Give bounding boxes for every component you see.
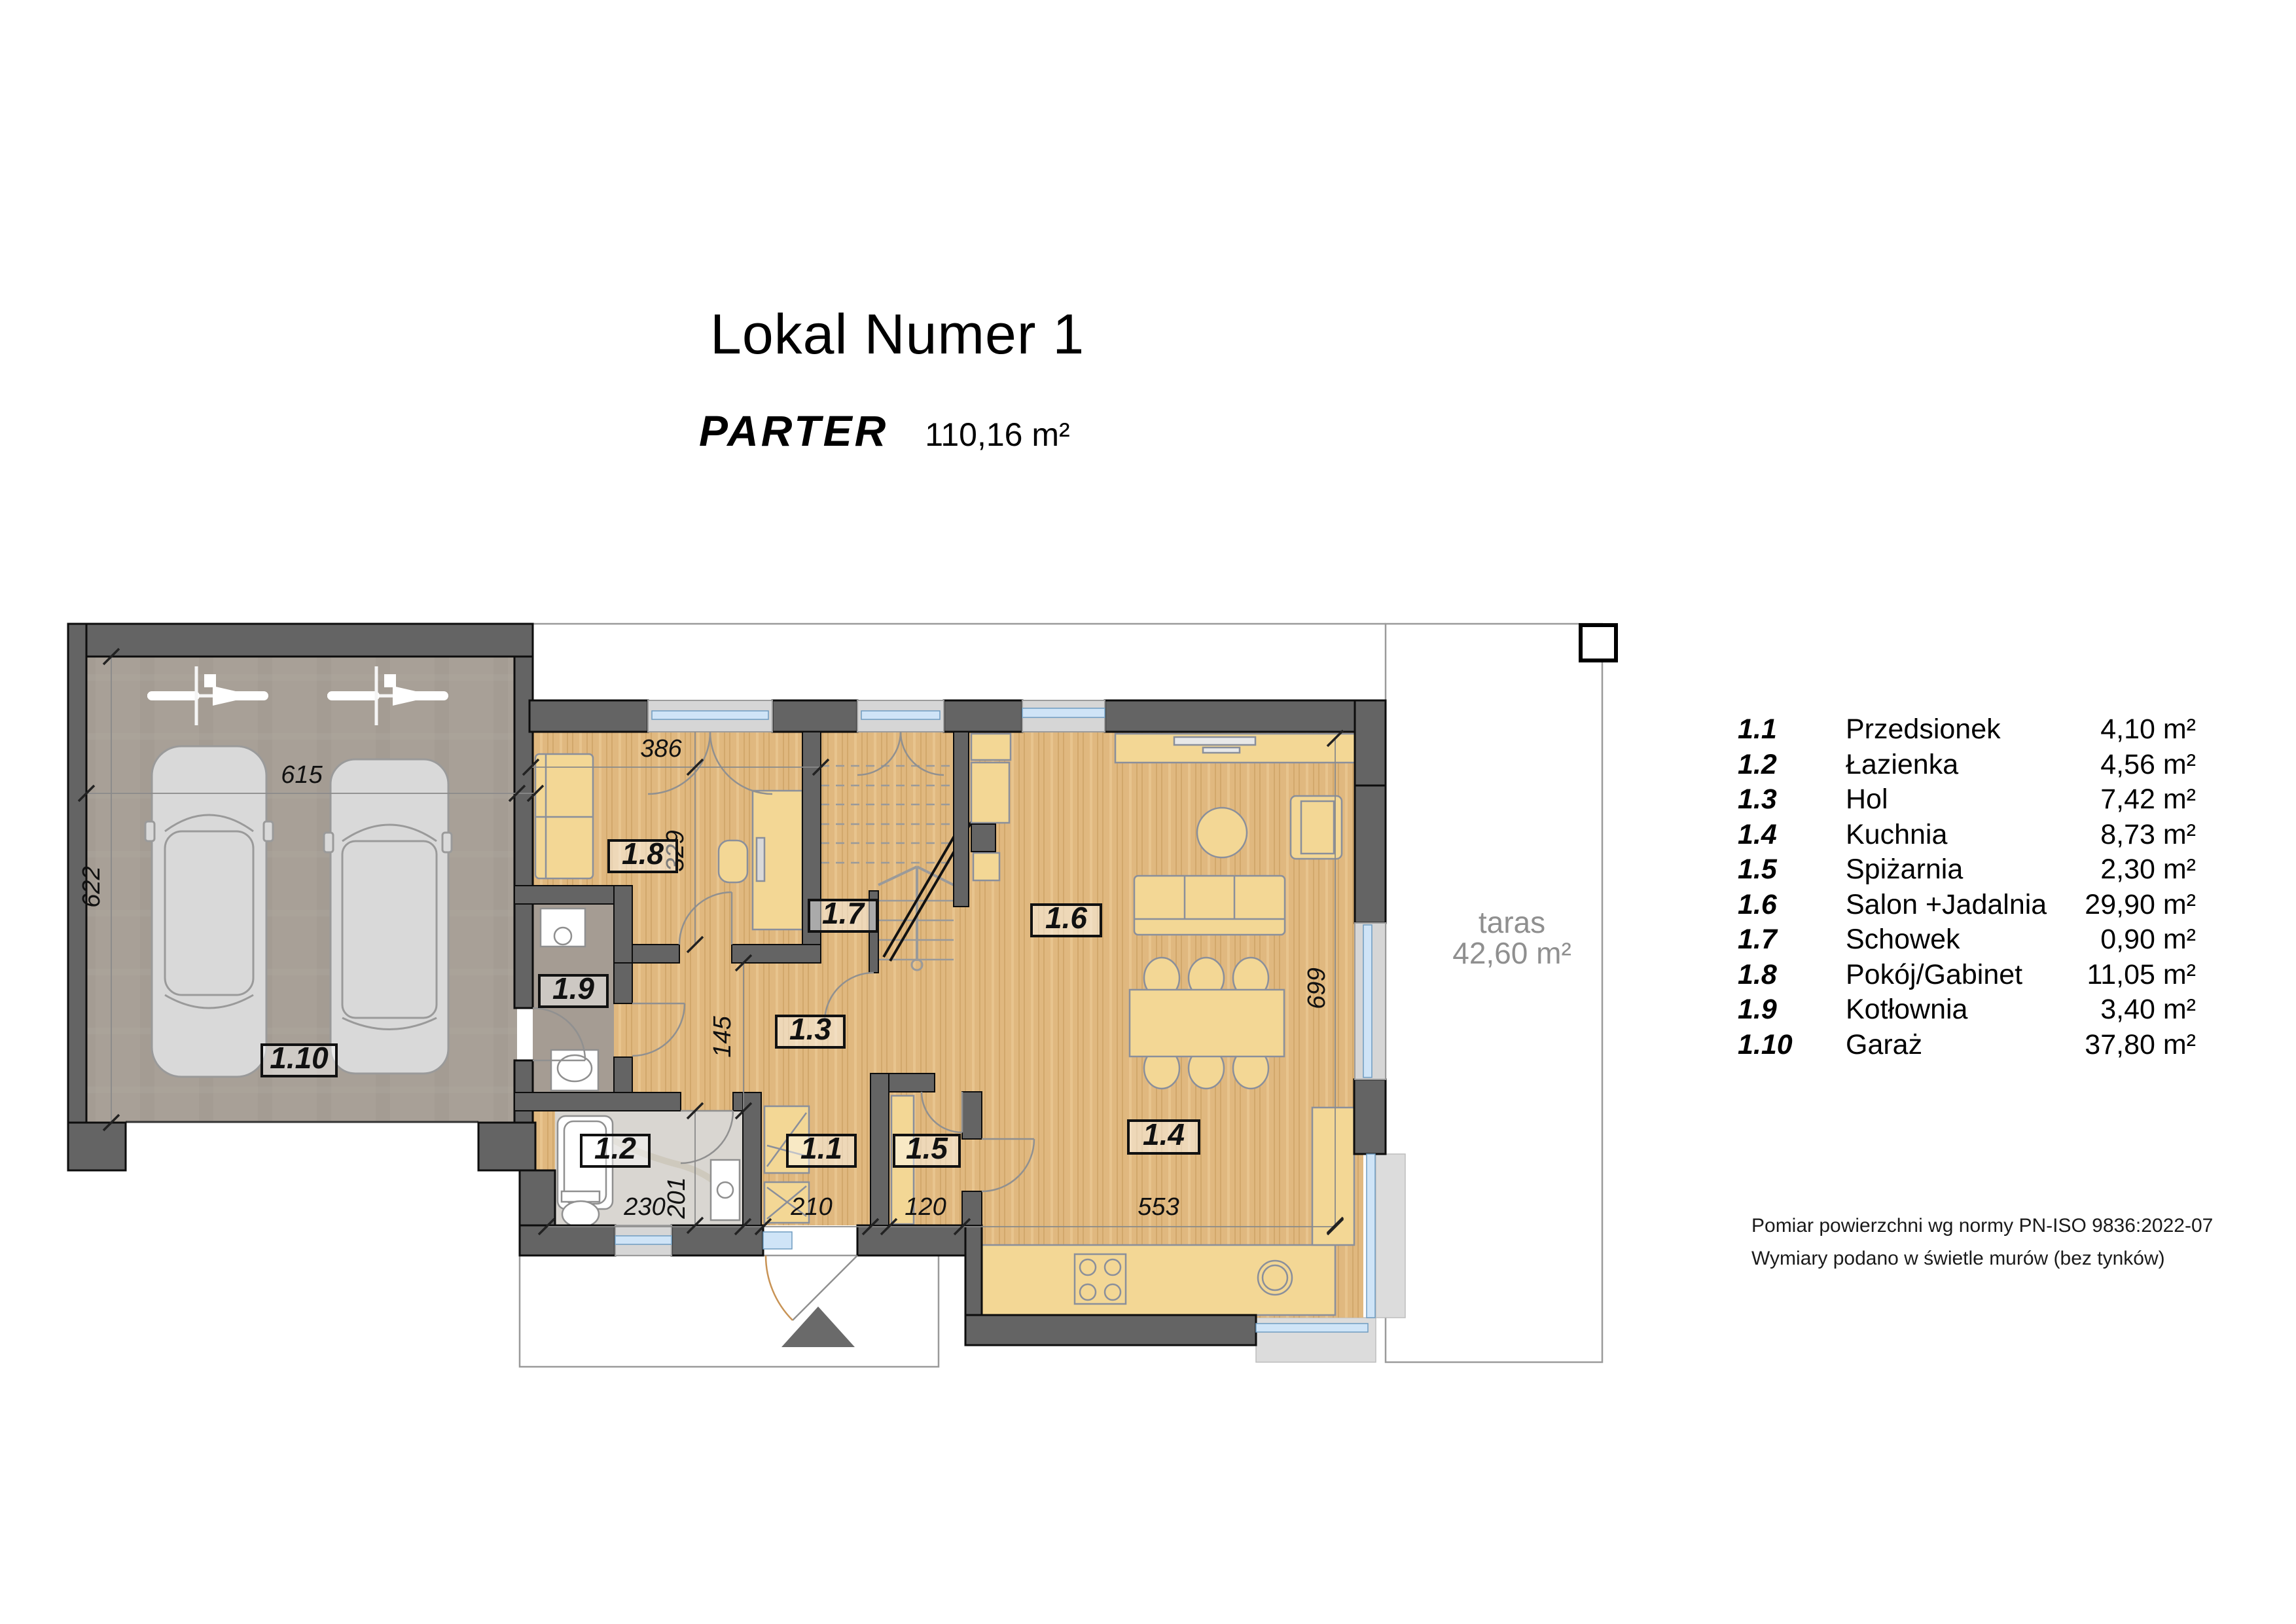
label-hall: 1.3 — [789, 1012, 831, 1046]
corner-window-side — [1367, 1154, 1375, 1318]
label-living: 1.6 — [1045, 901, 1087, 935]
sofa — [1134, 876, 1285, 935]
kitchen-tall-unit — [971, 763, 1009, 823]
dim-hall-width: 145 — [709, 1015, 736, 1057]
floor-plan-page: Lokal Numer 1 PARTER 110,16 m² 1.1Przeds… — [0, 0, 2296, 1624]
monitor — [757, 838, 764, 881]
toilet-tank — [562, 1191, 600, 1202]
label-vestibule: 1.1 — [800, 1131, 842, 1165]
terrace-area: 42,60 m² — [1452, 936, 1571, 970]
label-storage: 1.7 — [822, 896, 865, 930]
entrance-porch — [520, 1255, 939, 1367]
label-boiler: 1.9 — [552, 971, 594, 1005]
tv — [1174, 737, 1255, 745]
terrace-name: taras — [1479, 905, 1545, 939]
dim-garage-height: 622 — [78, 866, 105, 907]
toilet — [562, 1201, 599, 1227]
dining-table — [1130, 990, 1284, 1056]
soundbar — [1203, 748, 1240, 753]
car-sedan — [145, 746, 273, 1077]
entry-sidelight — [763, 1232, 792, 1249]
label-bathroom: 1.2 — [594, 1131, 636, 1165]
kitchen-counter-leg — [1312, 1108, 1354, 1245]
dim-bath-width: 230 — [623, 1193, 665, 1221]
label-office: 1.8 — [622, 837, 664, 871]
dim-pantry-width: 120 — [905, 1193, 946, 1221]
kitchen-tall-unit — [971, 734, 1011, 760]
dim-kitchen-width: 553 — [1138, 1193, 1179, 1221]
floor-plan-svg: taras 42,60 m² — [0, 0, 2296, 1624]
kitchen-counter — [982, 1245, 1335, 1315]
car-suv — [324, 759, 452, 1074]
desk-chair — [719, 840, 747, 882]
washer — [711, 1160, 740, 1220]
dim-vestibule-width: 210 — [790, 1193, 832, 1221]
dim-office-width: 386 — [640, 735, 682, 763]
dim-living-height: 699 — [1303, 967, 1331, 1009]
label-pantry: 1.5 — [906, 1131, 948, 1165]
dim-bath-depth: 201 — [663, 1177, 691, 1219]
kitchen-tall-unit — [973, 853, 999, 880]
label-kitchen: 1.4 — [1143, 1117, 1185, 1151]
corner-window-bottom — [1256, 1324, 1368, 1332]
side-table — [1197, 808, 1247, 857]
terrace-pillar — [1581, 625, 1616, 660]
dim-garage-width: 615 — [281, 761, 323, 789]
label-garage: 1.10 — [270, 1041, 329, 1075]
